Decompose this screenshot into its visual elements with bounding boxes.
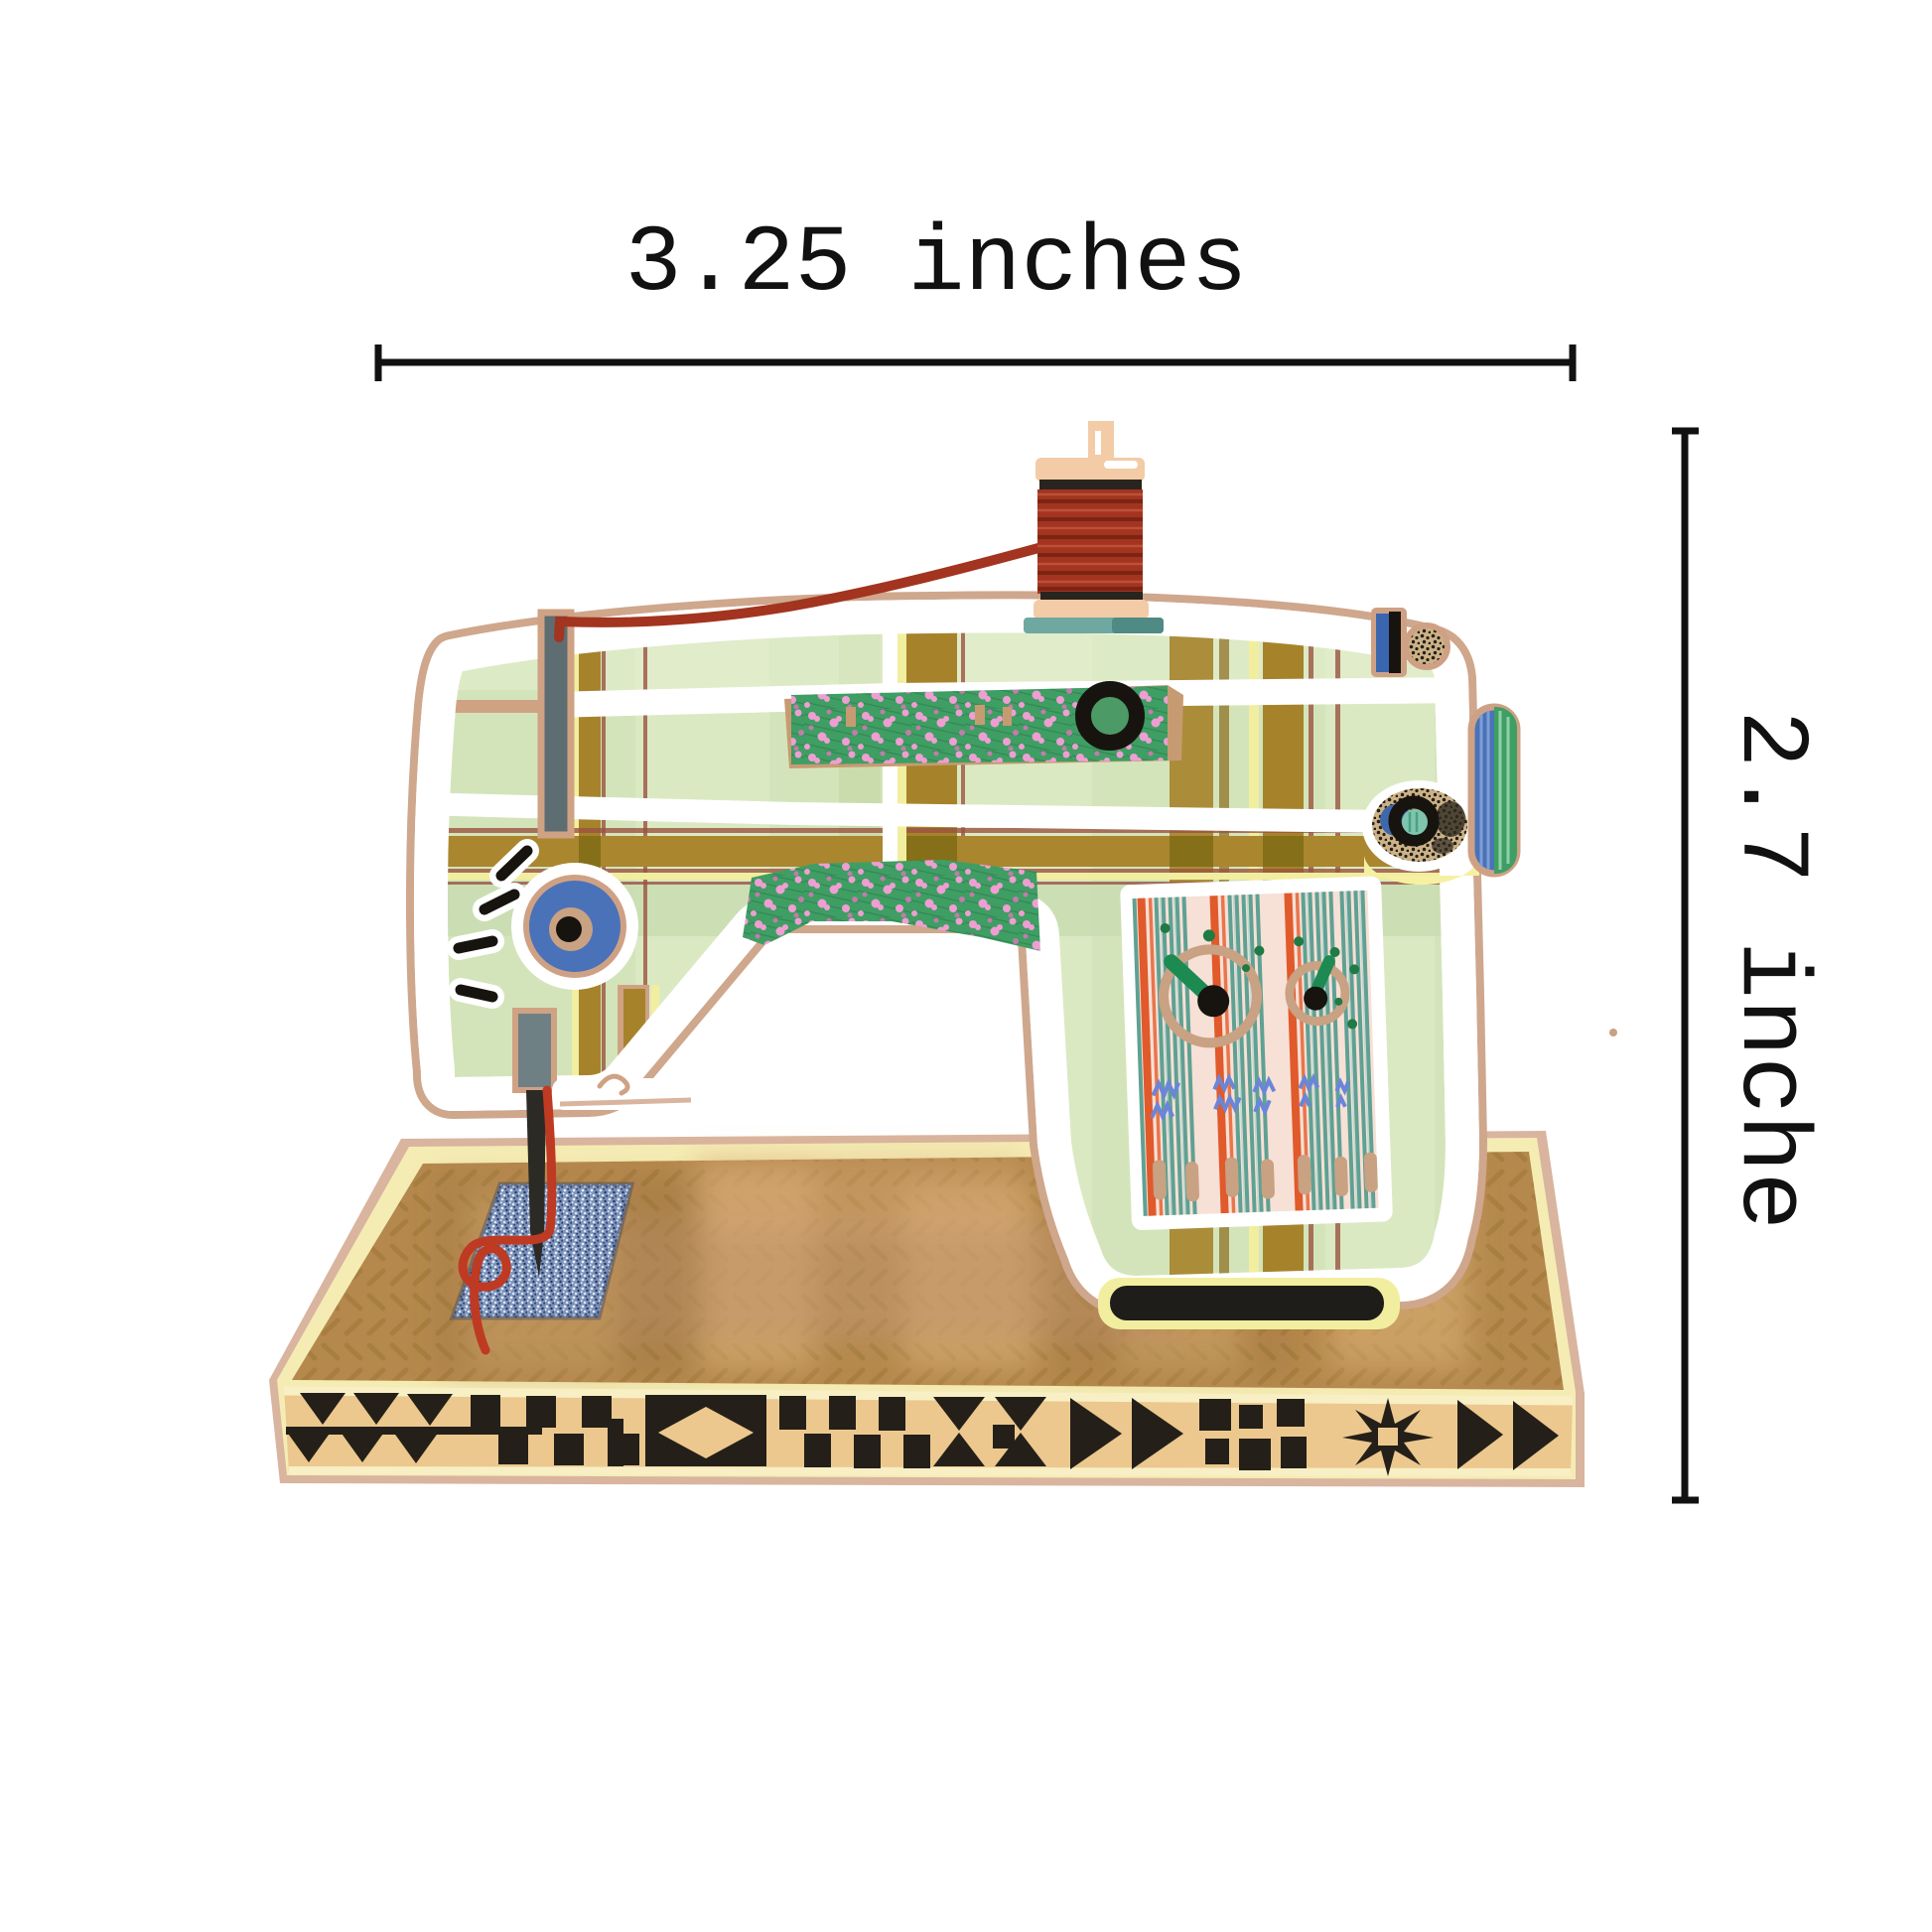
svg-text:2.7 inche: 2.7 inche: [1715, 710, 1824, 1230]
svg-text:3.25 inches: 3.25 inches: [624, 210, 1247, 318]
